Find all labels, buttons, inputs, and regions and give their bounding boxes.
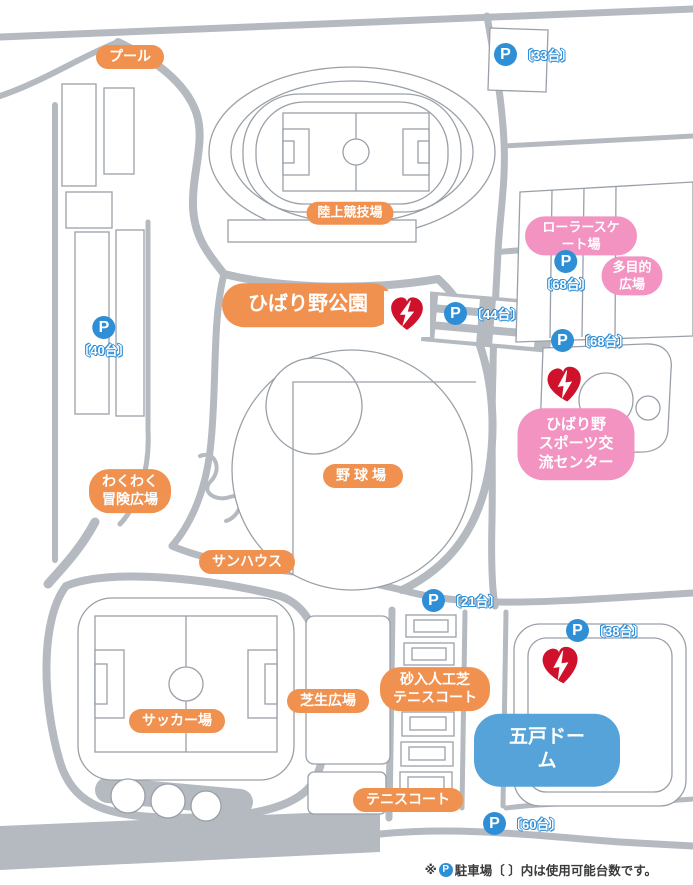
footnote-text: 駐車場〔 〕内は使用可能台数です。 — [455, 860, 657, 879]
parking-marker-60: P 〔60台〕 — [483, 812, 562, 835]
aed-heart-icon — [542, 362, 587, 407]
label-park-name: ひばり野公園 — [222, 283, 394, 327]
parking-capacity: 〔40台〕 — [77, 340, 130, 359]
parking-marker-21: P 〔21台〕 — [422, 589, 501, 612]
parking-capacity: 〔33台〕 — [520, 45, 573, 64]
parking-icon: P — [494, 43, 517, 66]
parking-marker-44: P 〔44台〕 — [444, 302, 523, 325]
label-adventure-plaza: わくわく 冒険広場 — [89, 469, 171, 513]
parking-capacity: 〔21台〕 — [448, 591, 501, 610]
parking-icon: P — [439, 863, 453, 877]
parking-capacity: 〔68台〕 — [577, 331, 630, 350]
parking-icon: P — [422, 589, 445, 612]
parking-marker-33: P 〔33台〕 — [494, 43, 573, 66]
parking-icon: P — [555, 250, 578, 273]
parking-marker-40: P 〔40台〕 — [77, 316, 130, 359]
label-tennis-court: テニスコート — [353, 788, 463, 812]
label-baseball-field: 野球場 — [323, 464, 403, 488]
parking-icon: P — [551, 329, 574, 352]
label-soccer-field: サッカー場 — [129, 709, 225, 733]
label-pool: プール — [96, 45, 164, 69]
footnote: ※ P 駐車場〔 〕内は使用可能台数です。 — [425, 860, 657, 879]
parking-capacity: 〔38台〕 — [592, 621, 645, 640]
parking-marker-68b: P 〔68台〕 — [551, 329, 630, 352]
footnote-prefix: ※ — [425, 862, 437, 877]
label-athletics-field: 陸上競技場 — [306, 202, 393, 225]
hibarino-park-map: プール 陸上競技場 ローラースケート場 多目的広場 ひばり野公園 ひばり野 スポ… — [0, 0, 693, 885]
label-multipurpose-plaza: 多目的広場 — [602, 256, 663, 295]
parking-capacity: 〔44台〕 — [470, 304, 523, 323]
parking-capacity: 〔68台〕 — [539, 274, 592, 293]
label-sports-center: ひばり野 スポーツ交流センター — [518, 408, 635, 480]
parking-icon: P — [483, 812, 506, 835]
parking-icon: P — [566, 619, 589, 642]
parking-icon: P — [444, 302, 467, 325]
parking-icon: P — [93, 316, 116, 339]
parking-capacity: 〔60台〕 — [509, 814, 562, 833]
parking-marker-68a: P 〔68台〕 — [539, 250, 592, 293]
label-lawn-plaza: 芝生広場 — [287, 689, 369, 713]
label-gonohe-dome: 五戸ドーム — [474, 714, 620, 787]
parking-marker-38: P 〔38台〕 — [566, 619, 645, 642]
label-sun-house: サンハウス — [199, 550, 295, 574]
aed-heart-icon — [384, 291, 430, 337]
aed-heart-icon — [537, 642, 584, 689]
label-sand-tennis-court: 砂入人工芝 テニスコート — [380, 667, 490, 711]
